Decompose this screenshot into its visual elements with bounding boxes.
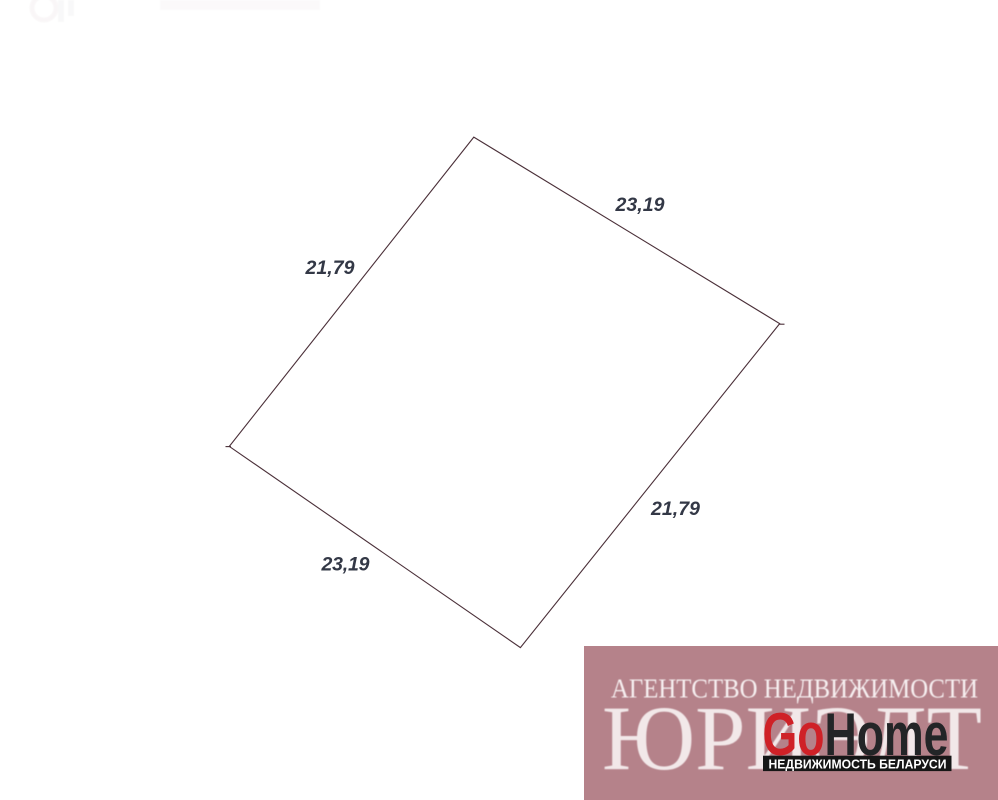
svg-text:21,79: 21,79	[305, 257, 355, 279]
svg-text:23,19: 23,19	[615, 194, 665, 216]
svg-text:НЕДВИЖИМОСТЬ БЕЛАРУСИ: НЕДВИЖИМОСТЬ БЕЛАРУСИ	[769, 757, 947, 771]
svg-text:21,79: 21,79	[650, 498, 700, 520]
svg-text:23,19: 23,19	[321, 554, 370, 576]
